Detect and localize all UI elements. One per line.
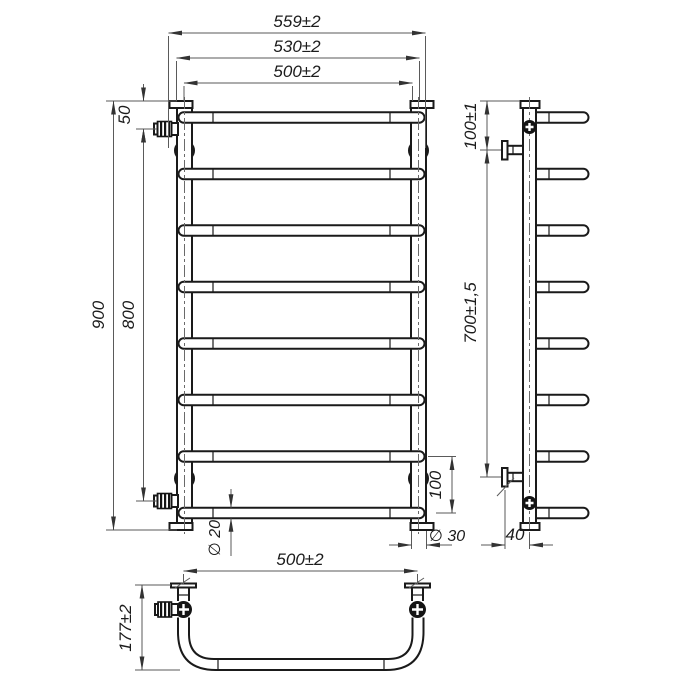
front-bracket-icons (175, 141, 428, 488)
front-rungs (179, 112, 425, 518)
rung (179, 338, 425, 349)
side-bottom-flange-icon (480, 468, 523, 496)
drawing-canvas: 559±2 530±2 500±2 900 800 50 100 ∅ 20 (0, 0, 700, 700)
dim-width-outer: 559±2 (273, 12, 321, 31)
dim-height-total: 900 (89, 300, 108, 329)
dim-tube-diameter: ∅ 30 (429, 528, 465, 545)
rung (179, 112, 425, 123)
dim-wall-distance: 40 (506, 525, 525, 544)
dim-top-bracket-offset: 100±1 (461, 102, 480, 149)
bottom-tube-inner (189, 618, 413, 660)
valve-fitting-bottom-icon (154, 494, 178, 509)
dim-bottom-bar-gap: 100 (426, 470, 445, 499)
dim-depth: 177±2 (116, 604, 135, 652)
rung (179, 169, 425, 180)
bottom-valve-fitting-icon (155, 602, 178, 617)
dim-bracket-span: 700±1,5 (461, 282, 480, 344)
side-top-flange-icon (480, 141, 523, 160)
towel-rail-technical-drawing: 559±2 530±2 500±2 900 800 50 100 ∅ 20 (0, 0, 700, 700)
rung (179, 395, 425, 406)
dim-width-centers: 530±2 (273, 37, 321, 56)
front-tube-caps (170, 101, 434, 530)
dim-top-offset: 50 (115, 105, 134, 124)
bottom-view: 500±2 177±2 (116, 550, 430, 670)
front-centerlines (185, 97, 419, 534)
bottom-tube-weld-ticks (218, 659, 384, 670)
rung (179, 282, 425, 293)
valve-fitting-top-icon (154, 122, 178, 137)
dim-width-inner: 500±2 (273, 62, 321, 81)
rung (179, 225, 425, 236)
rung (179, 508, 425, 519)
bottom-bracket-bosses (175, 601, 426, 618)
bottom-tube-outer (178, 618, 424, 671)
dim-bar-diameter: ∅ 20 (207, 520, 224, 556)
side-view: 100±1 700±1,5 40 (461, 97, 589, 549)
front-view: 559±2 530±2 500±2 900 800 50 100 ∅ 20 (89, 12, 465, 556)
dim-height-connections: 800 (119, 300, 138, 329)
rung (179, 451, 425, 462)
dim-bottom-width: 500±2 (276, 550, 324, 569)
side-rungs (535, 112, 589, 518)
